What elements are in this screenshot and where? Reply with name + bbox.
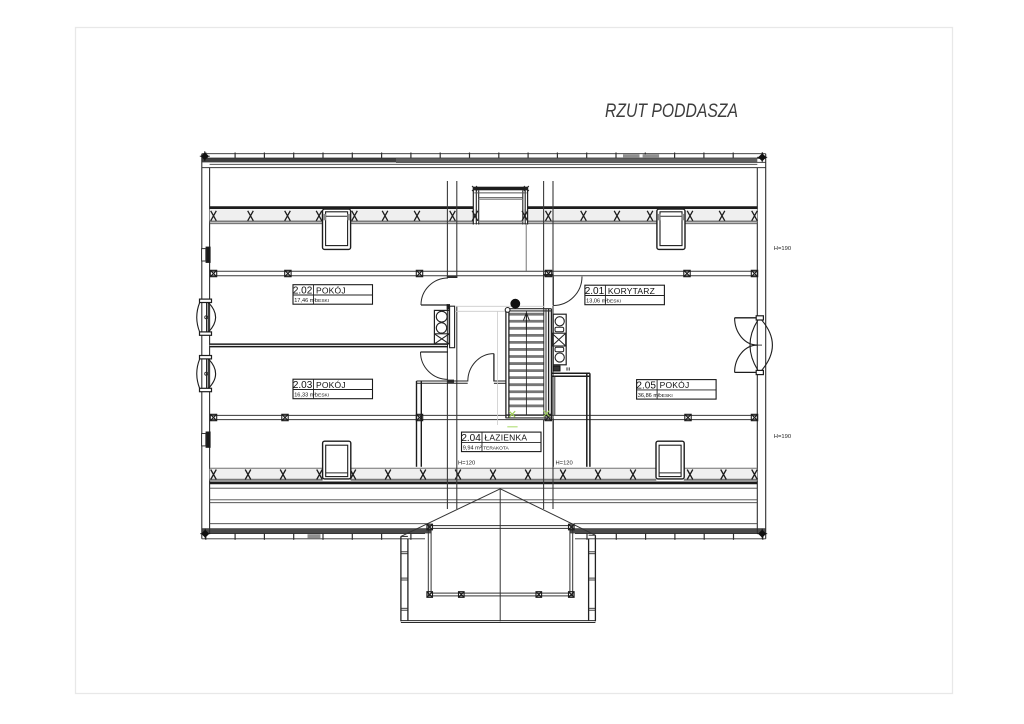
svg-text:H=190: H=190	[774, 246, 791, 252]
svg-text:DESKI: DESKI	[315, 392, 329, 398]
svg-text:ŁAZIENKA: ŁAZIENKA	[485, 433, 528, 443]
svg-text:13,06 m²: 13,06 m²	[586, 299, 608, 305]
svg-text:RZUT PODDASZA: RZUT PODDASZA	[605, 101, 738, 122]
svg-text:POKÓJ: POKÓJ	[316, 285, 346, 295]
svg-text:2.05: 2.05	[636, 380, 656, 391]
svg-text:H=120: H=120	[556, 461, 573, 467]
svg-text:2.02: 2.02	[293, 286, 313, 297]
svg-text:16,33 m²: 16,33 m²	[294, 393, 316, 399]
svg-text:TERAKOTA: TERAKOTA	[483, 445, 509, 451]
svg-text:9,94 m²: 9,94 m²	[463, 446, 482, 452]
svg-text:DESKI: DESKI	[607, 298, 621, 304]
svg-text:H=120: H=120	[458, 461, 475, 467]
svg-text:36,86 m²: 36,86 m²	[638, 393, 660, 399]
svg-text:POKÓJ: POKÓJ	[660, 380, 690, 390]
svg-text:2.04: 2.04	[461, 433, 481, 444]
svg-text:DESKI: DESKI	[658, 393, 672, 399]
svg-text:17,46 m²: 17,46 m²	[294, 298, 316, 304]
svg-text:H=190: H=190	[774, 434, 791, 440]
svg-text:DESKI: DESKI	[315, 298, 329, 304]
svg-text:2.01: 2.01	[585, 286, 605, 297]
svg-text:2.03: 2.03	[293, 380, 313, 391]
svg-text:KORYTARZ: KORYTARZ	[608, 286, 655, 296]
svg-text:POKÓJ: POKÓJ	[316, 380, 346, 390]
